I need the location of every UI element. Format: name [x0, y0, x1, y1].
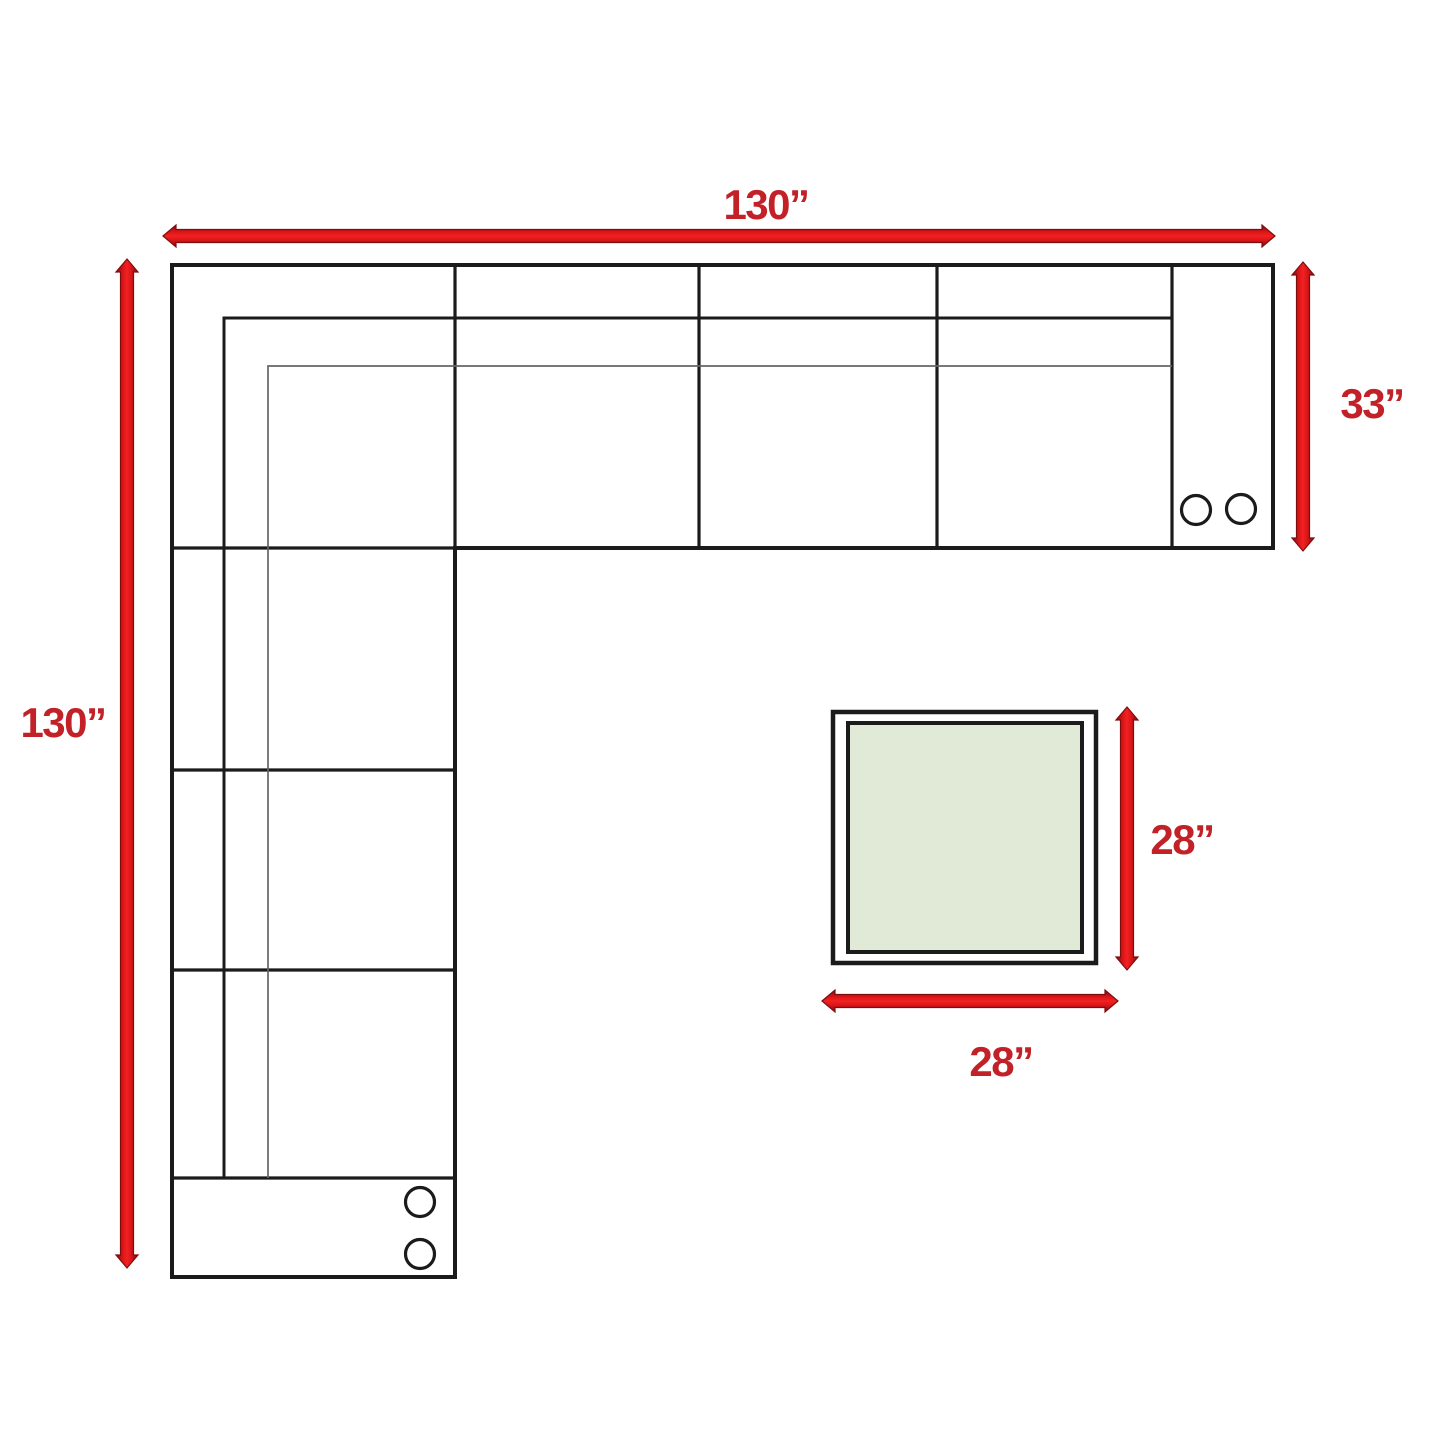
- svg-text:28”: 28”: [1150, 816, 1213, 863]
- svg-text:130”: 130”: [723, 181, 808, 228]
- svg-text:33”: 33”: [1340, 380, 1403, 427]
- svg-text:130”: 130”: [20, 699, 105, 746]
- svg-text:28”: 28”: [969, 1038, 1032, 1085]
